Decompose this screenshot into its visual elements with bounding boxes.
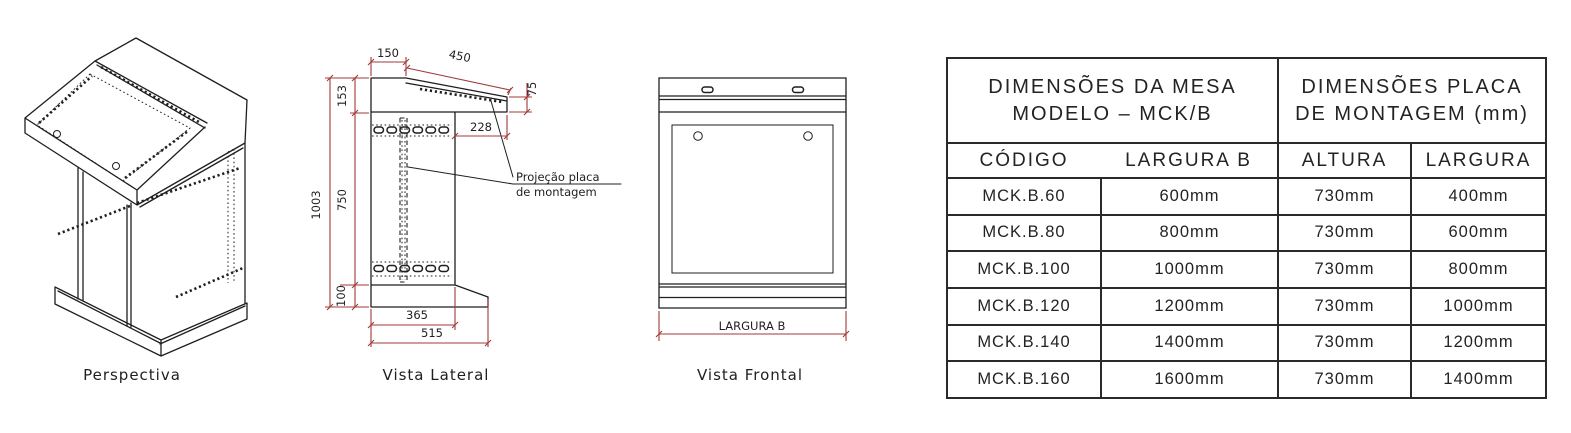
dim-153: 153 [335,85,349,107]
table-group-header-placa: DIMENSÕES PLACA DE MONTAGEM (mm) [1277,59,1545,142]
dim-228: 228 [470,120,492,134]
table-cell-largura: 1000mm [1410,287,1545,324]
perspective-hidden-lines [37,74,234,283]
perspective-slot-rows [39,67,243,297]
table-cell-codigo: MCK.B.80 [948,214,1100,251]
group-header-placa-line1: DIMENSÕES PLACA [1301,74,1522,101]
dim-365: 365 [406,308,428,322]
view-frontal: LARGURA B Vista Frontal [656,78,849,384]
table-cell-altura: 730mm [1277,250,1410,287]
lateral-slot-band-lines [372,120,452,280]
lateral-outline [371,78,507,307]
frontal-hole-2 [804,132,813,141]
perspective-hole-1 [54,131,61,138]
frontal-slot-1 [702,87,713,93]
table-group-header-mesa: DIMENSÕES DA MESA MODELO – MCK/B [948,59,1277,142]
dim-75: 75 [525,82,539,97]
group-header-mesa-line1: DIMENSÕES DA MESA [988,74,1237,101]
view-label-perspectiva: Perspectiva [83,366,181,384]
column-header-largura-b: LARGURA B [1100,142,1277,177]
table-cell-largura: 1200mm [1410,324,1545,361]
lateral-upper-slots [374,127,449,133]
perspective-hole-2 [113,163,120,170]
table-cell-largura-b: 800mm [1100,214,1277,251]
table-cell-codigo: MCK.B.140 [948,324,1100,361]
perspective-body-outline [78,143,245,327]
annotation-text-line1: Projeção placa [516,170,600,184]
table-cell-largura-b: 1600mm [1100,360,1277,397]
view-label-frontal: Vista Frontal [697,366,803,384]
table-cell-largura: 1400mm [1410,360,1545,397]
frontal-hole-1 [694,132,703,141]
spec-table: DIMENSÕES DA MESA MODELO – MCK/B DIMENSÕ… [946,57,1547,399]
table-cell-altura: 730mm [1277,177,1410,214]
group-header-mesa-line2: MODELO – MCK/B [1012,101,1212,128]
dim-750: 750 [335,189,349,211]
dim-largura-b: LARGURA B [719,319,786,333]
lateral-dimension-lines [330,62,527,343]
table-cell-altura: 730mm [1277,360,1410,397]
drawing-views: Perspectiva [0,0,940,433]
dim-450: 450 [448,47,472,65]
table-cell-largura-b: 600mm [1100,177,1277,214]
table-cell-largura-b: 1400mm [1100,324,1277,361]
dim-150: 150 [377,46,399,60]
lateral-mounting-plate-hidden [400,118,407,282]
dim-100: 100 [334,285,348,307]
table-cell-largura: 800mm [1410,250,1545,287]
lateral-slope-slot-row [420,89,502,102]
table-cell-largura: 400mm [1410,177,1545,214]
perspective-base-outline [55,287,247,356]
perspective-head-outline [25,38,247,205]
table-cell-altura: 730mm [1277,324,1410,361]
table-cell-largura-b: 1000mm [1100,250,1277,287]
table-cell-codigo: MCK.B.120 [948,287,1100,324]
view-perspectiva: Perspectiva [25,38,247,384]
column-header-largura: LARGURA [1410,142,1545,177]
column-header-codigo: CÓDIGO [948,142,1100,177]
frontal-slot-2 [793,87,804,93]
table-cell-altura: 730mm [1277,287,1410,324]
technical-drawing-sheet: Perspectiva [0,0,1571,433]
table-cell-largura-b: 1200mm [1100,287,1277,324]
frontal-inner-panel [672,125,833,273]
table-cell-codigo: MCK.B.60 [948,177,1100,214]
annotation-text-line2: de montagem [516,185,597,199]
table-cell-largura: 600mm [1410,214,1545,251]
dim-515: 515 [421,326,443,340]
view-lateral: Projeção placa de montagem 150 450 75 22… [309,46,621,384]
lateral-lower-slots [374,266,449,272]
group-header-placa-line2: DE MONTAGEM (mm) [1295,101,1529,128]
column-header-altura: ALTURA [1277,142,1410,177]
table-cell-codigo: MCK.B.100 [948,250,1100,287]
view-label-lateral: Vista Lateral [383,366,490,384]
table-cell-codigo: MCK.B.160 [948,360,1100,397]
table-cell-altura: 730mm [1277,214,1410,251]
dim-1003: 1003 [309,190,323,219]
